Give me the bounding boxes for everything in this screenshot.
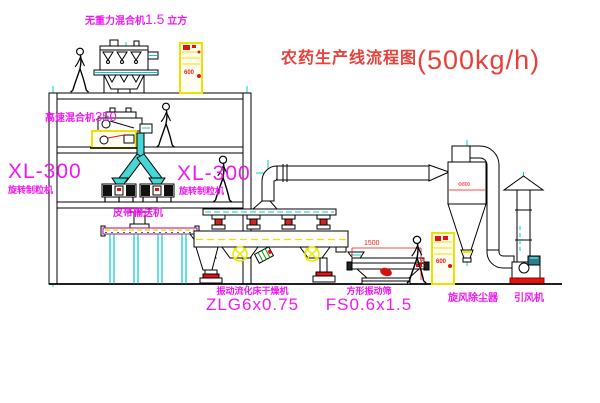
granulator-center-machine <box>140 184 174 202</box>
fluid-bed-dryer-machine <box>194 209 348 283</box>
label-belt-conveyor: 皮带输送机 <box>113 209 163 220</box>
control-cabinet-top <box>180 43 202 93</box>
exhaust-stack <box>504 176 543 264</box>
sieve-model: FS0.6x1.5 <box>325 296 413 314</box>
label-granulator-left: XL-300 旋转制粒机 <box>8 161 82 195</box>
label-dryer: 振动流化床干燥机 ZLG6x0.75 <box>200 287 305 314</box>
label-gravity-mixer: 无重力混合机1.5 立方 <box>85 12 187 28</box>
panel-top-text: 600 <box>184 70 194 76</box>
sample-drum <box>255 247 274 263</box>
dim-sieve-width: 1500 <box>364 240 380 247</box>
granulator-left-name: 旋转制粒机 <box>8 186 82 195</box>
dryer-mounts <box>212 215 330 229</box>
label-granulator-center: XL-300 旋转制粒机 <box>177 163 251 196</box>
label-cyclone: 旋风除尘器 <box>448 294 498 305</box>
title-text: 农药生产线流程图 <box>281 50 417 67</box>
dim-sieve-height: 541 <box>418 258 424 268</box>
exhaust-ductwork <box>253 164 449 209</box>
granulator-left-machine <box>102 184 136 202</box>
gravity-mixer <box>94 40 158 93</box>
person-figure <box>71 48 89 92</box>
title-capacity: (500kg/h) <box>417 45 540 75</box>
granulator-left-model: XL-300 <box>8 161 82 183</box>
vibrating-sieve-machine <box>347 248 429 284</box>
panel-right-text: 600 <box>436 259 446 265</box>
flow-diagram-canvas: 农药生产线流程图(500kg/h) 无重力混合机1.5 立方 高速混合机350 … <box>0 0 600 403</box>
dryer-model: ZLG6x0.75 <box>200 296 305 314</box>
person-figure <box>157 103 175 147</box>
label-high-speed-mixer: 高速混合机350 <box>45 110 117 125</box>
granulator-center-name: 旋转制粒机 <box>179 187 251 196</box>
label-fan: 引风机 <box>514 294 544 305</box>
cyclone-size-label: Φ800 <box>458 182 470 188</box>
page-title: 农药生产线流程图(500kg/h) <box>281 44 540 76</box>
granulator-center-model: XL-300 <box>177 163 251 185</box>
label-sieve: 方形振动筛 FS0.6x1.5 <box>325 287 413 314</box>
